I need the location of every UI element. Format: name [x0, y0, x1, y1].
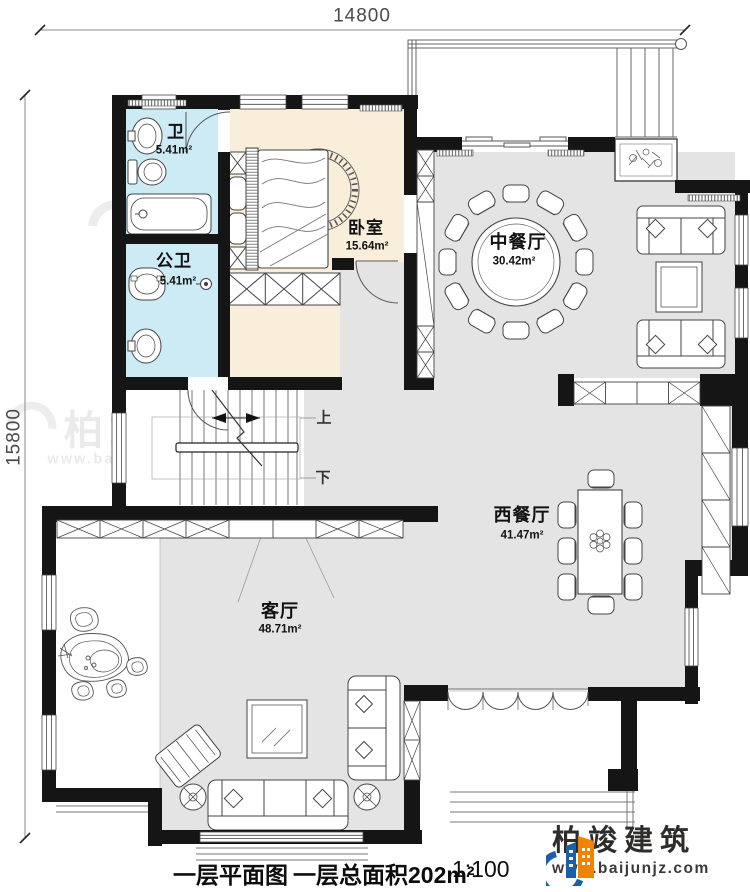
room-label-public-bath: 公卫	[156, 253, 192, 270]
entrance-folding-door	[448, 689, 588, 710]
brand-logo-icon	[546, 826, 604, 886]
room-area-western-dining: 41.47m²	[501, 530, 544, 542]
room-label-living: 客厅	[261, 602, 299, 620]
room-area-living: 48.71m²	[259, 624, 302, 636]
stairs-up-label: 上	[316, 411, 331, 426]
floor-plan-drawing	[0, 0, 750, 892]
living-sofa	[208, 780, 348, 830]
plan-total-area: 一层总面积202m²	[293, 856, 474, 890]
tv-cabinet-row	[57, 520, 403, 538]
sliding-door	[462, 137, 568, 147]
planter-box	[615, 139, 677, 181]
room-area-bedroom: 15.64m²	[346, 241, 389, 253]
stairs-down-label: 下	[315, 471, 330, 486]
plan-title: 一层平面图	[173, 856, 288, 890]
terrace-railing	[408, 39, 687, 138]
room-label-bedroom: 卧室	[348, 220, 384, 237]
bathtub	[127, 194, 211, 234]
hall-cabinet-column	[417, 150, 434, 378]
plan-scale: 1:100	[452, 856, 510, 883]
room-label-western-dining: 西餐厅	[494, 506, 551, 524]
toilet	[128, 159, 166, 185]
dining-cabinet-row	[574, 382, 700, 404]
side-sofa	[348, 676, 400, 780]
room-area-bath: 5.41m²	[156, 145, 192, 157]
entry-cabinet-column	[404, 701, 420, 780]
room-area-chinese-dining: 30.42m²	[493, 256, 536, 268]
dimension-width: 14800	[333, 7, 391, 26]
brand-logo: 柏竣建筑 www.baijunjz.com	[546, 826, 710, 878]
floor-plan-page: 柏竣建筑 www.baijunjz.com 柏竣建筑 www.baijunjz.…	[0, 0, 750, 892]
sideboard	[702, 406, 730, 594]
dimension-height: 15800	[5, 408, 24, 466]
room-area-public-bath: 5.41m²	[160, 276, 196, 288]
bed	[246, 148, 328, 270]
wardrobe	[228, 273, 340, 305]
coffee-table	[247, 700, 307, 758]
room-label-bath: 卫	[167, 124, 185, 141]
room-label-chinese-dining: 中餐厅	[490, 233, 547, 251]
